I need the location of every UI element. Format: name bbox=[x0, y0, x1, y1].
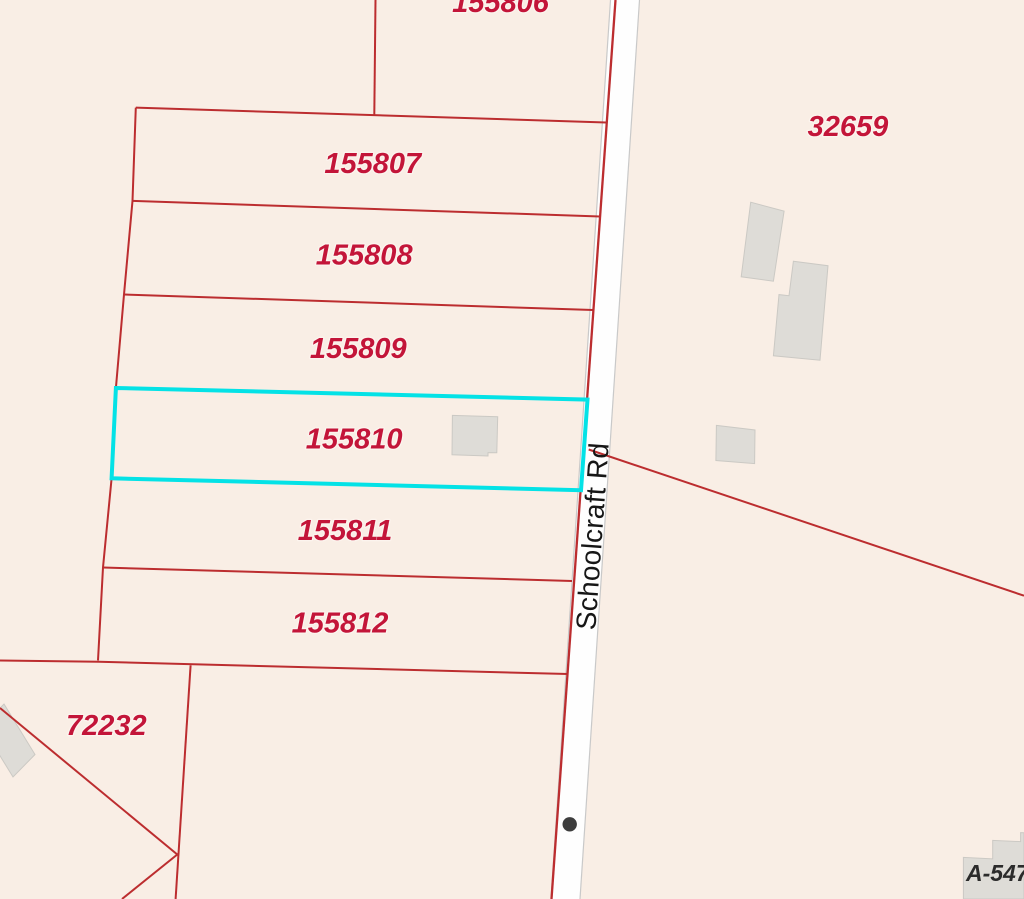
svg-text:155808: 155808 bbox=[316, 240, 414, 272]
svg-text:155809: 155809 bbox=[310, 333, 407, 365]
svg-text:155811: 155811 bbox=[298, 515, 393, 547]
svg-text:72232: 72232 bbox=[66, 710, 147, 742]
svg-text:155807: 155807 bbox=[324, 148, 423, 180]
svg-text:155806: 155806 bbox=[452, 0, 550, 19]
svg-text:A-547: A-547 bbox=[965, 860, 1024, 886]
svg-text:155812: 155812 bbox=[292, 608, 389, 640]
svg-text:155810: 155810 bbox=[306, 424, 403, 456]
svg-text:32659: 32659 bbox=[808, 111, 889, 143]
